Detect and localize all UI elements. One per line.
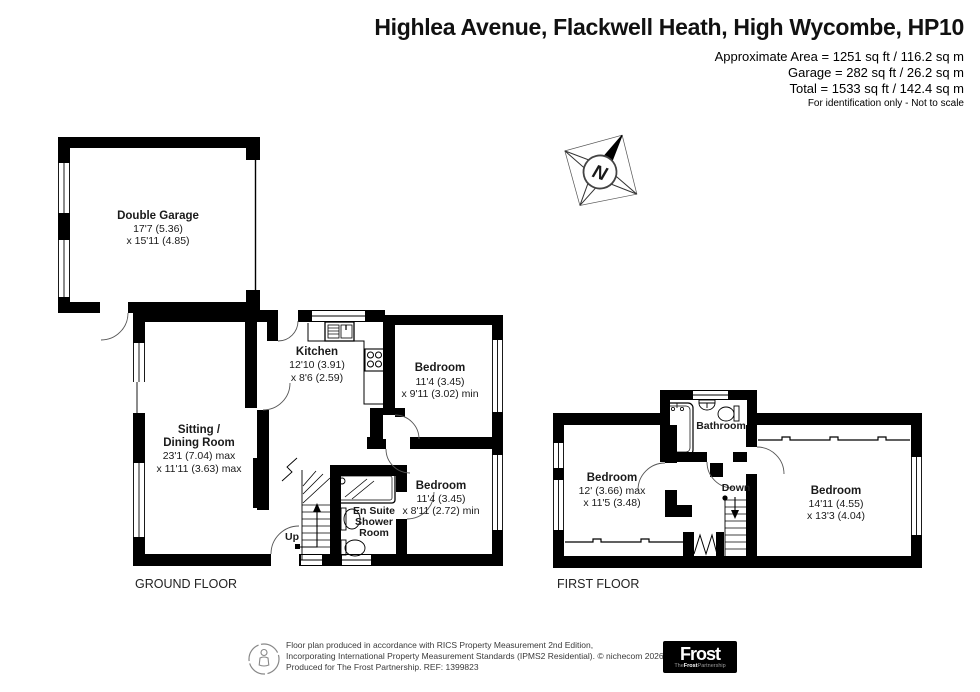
frost-partnership-logo: Frost TheFrostPartnership	[663, 641, 737, 673]
footer-line-3: Produced for The Frost Partnership. REF:…	[286, 662, 666, 673]
ensuite-line3: Room	[359, 527, 389, 539]
garage-dim1: 17'7 (5.36)	[133, 223, 183, 235]
gf-bedroom2-dim2: x 8'11 (2.72) min	[402, 505, 479, 517]
gf-bedroom1-dim1: 11'4 (3.45)	[415, 376, 464, 388]
ff-bedroom-left-dim1: 12' (3.66) max	[579, 485, 647, 497]
ff-bedroom-right-dim2: x 13'3 (4.04)	[807, 510, 865, 522]
ff-bedroom-right-name: Bedroom	[811, 485, 861, 497]
floorplan-page: Highlea Avenue, Flackwell Heath, High Wy…	[0, 0, 980, 692]
sitting-dim2: x 11'11 (3.63) max	[156, 463, 242, 475]
first-floor-label: FIRST FLOOR	[557, 577, 639, 591]
garage-dim2: x 15'11 (4.85)	[126, 235, 189, 247]
up-label: Up	[285, 531, 299, 543]
compass-rose: N	[545, 114, 659, 228]
first-floor-plan: Bedroom 12' (3.66) max x 11'5 (3.48) Bat…	[553, 390, 922, 591]
kitchen-name: Kitchen	[296, 346, 338, 358]
ff-bedroom-left-name: Bedroom	[587, 472, 637, 484]
frost-logo-sub: TheFrostPartnership	[674, 663, 725, 669]
garage-name: Double Garage	[117, 210, 199, 222]
footer-line-1: Floor plan produced in accordance with R…	[286, 640, 666, 651]
bifold-cupboard-door	[694, 535, 717, 554]
kitchen-dim1: 12'10 (3.91)	[289, 359, 345, 371]
ground-floor-label: GROUND FLOOR	[135, 577, 237, 591]
gf-bedroom2-dim1: 11'4 (3.45)	[416, 493, 465, 505]
footer-disclaimer: Floor plan produced in accordance with R…	[286, 640, 666, 673]
sitting-dim1: 23'1 (7.04) max	[163, 450, 236, 462]
gf-bedroom2-name: Bedroom	[416, 480, 466, 492]
floor-plan-svg: N	[0, 0, 980, 692]
frost-logo-main: Frost	[680, 645, 720, 663]
sitting-name1: Sitting /	[178, 424, 221, 436]
down-label: Down	[722, 482, 751, 494]
gf-bedroom1-dim2: x 9'11 (3.02) min	[401, 388, 478, 400]
footer-line-2: Incorporating International Property Mea…	[286, 651, 666, 662]
gf-bedroom1-name: Bedroom	[415, 362, 465, 374]
ff-bedroom-left-dim2: x 11'5 (3.48)	[583, 497, 640, 509]
sitting-name2: Dining Room	[163, 437, 235, 449]
bathroom-name: Bathroom	[696, 420, 746, 432]
stairs-up	[282, 458, 330, 560]
accessibility-person-icon	[249, 644, 279, 674]
ground-floor-labels: Double Garage 17'7 (5.36) x 15'11 (4.85)…	[117, 210, 480, 591]
ground-floor-plan: Double Garage 17'7 (5.36) x 15'11 (4.85)…	[58, 137, 503, 591]
kitchen-dim2: x 8'6 (2.59)	[291, 372, 343, 384]
ff-bedroom-right-dim1: 14'11 (4.55)	[809, 498, 864, 510]
